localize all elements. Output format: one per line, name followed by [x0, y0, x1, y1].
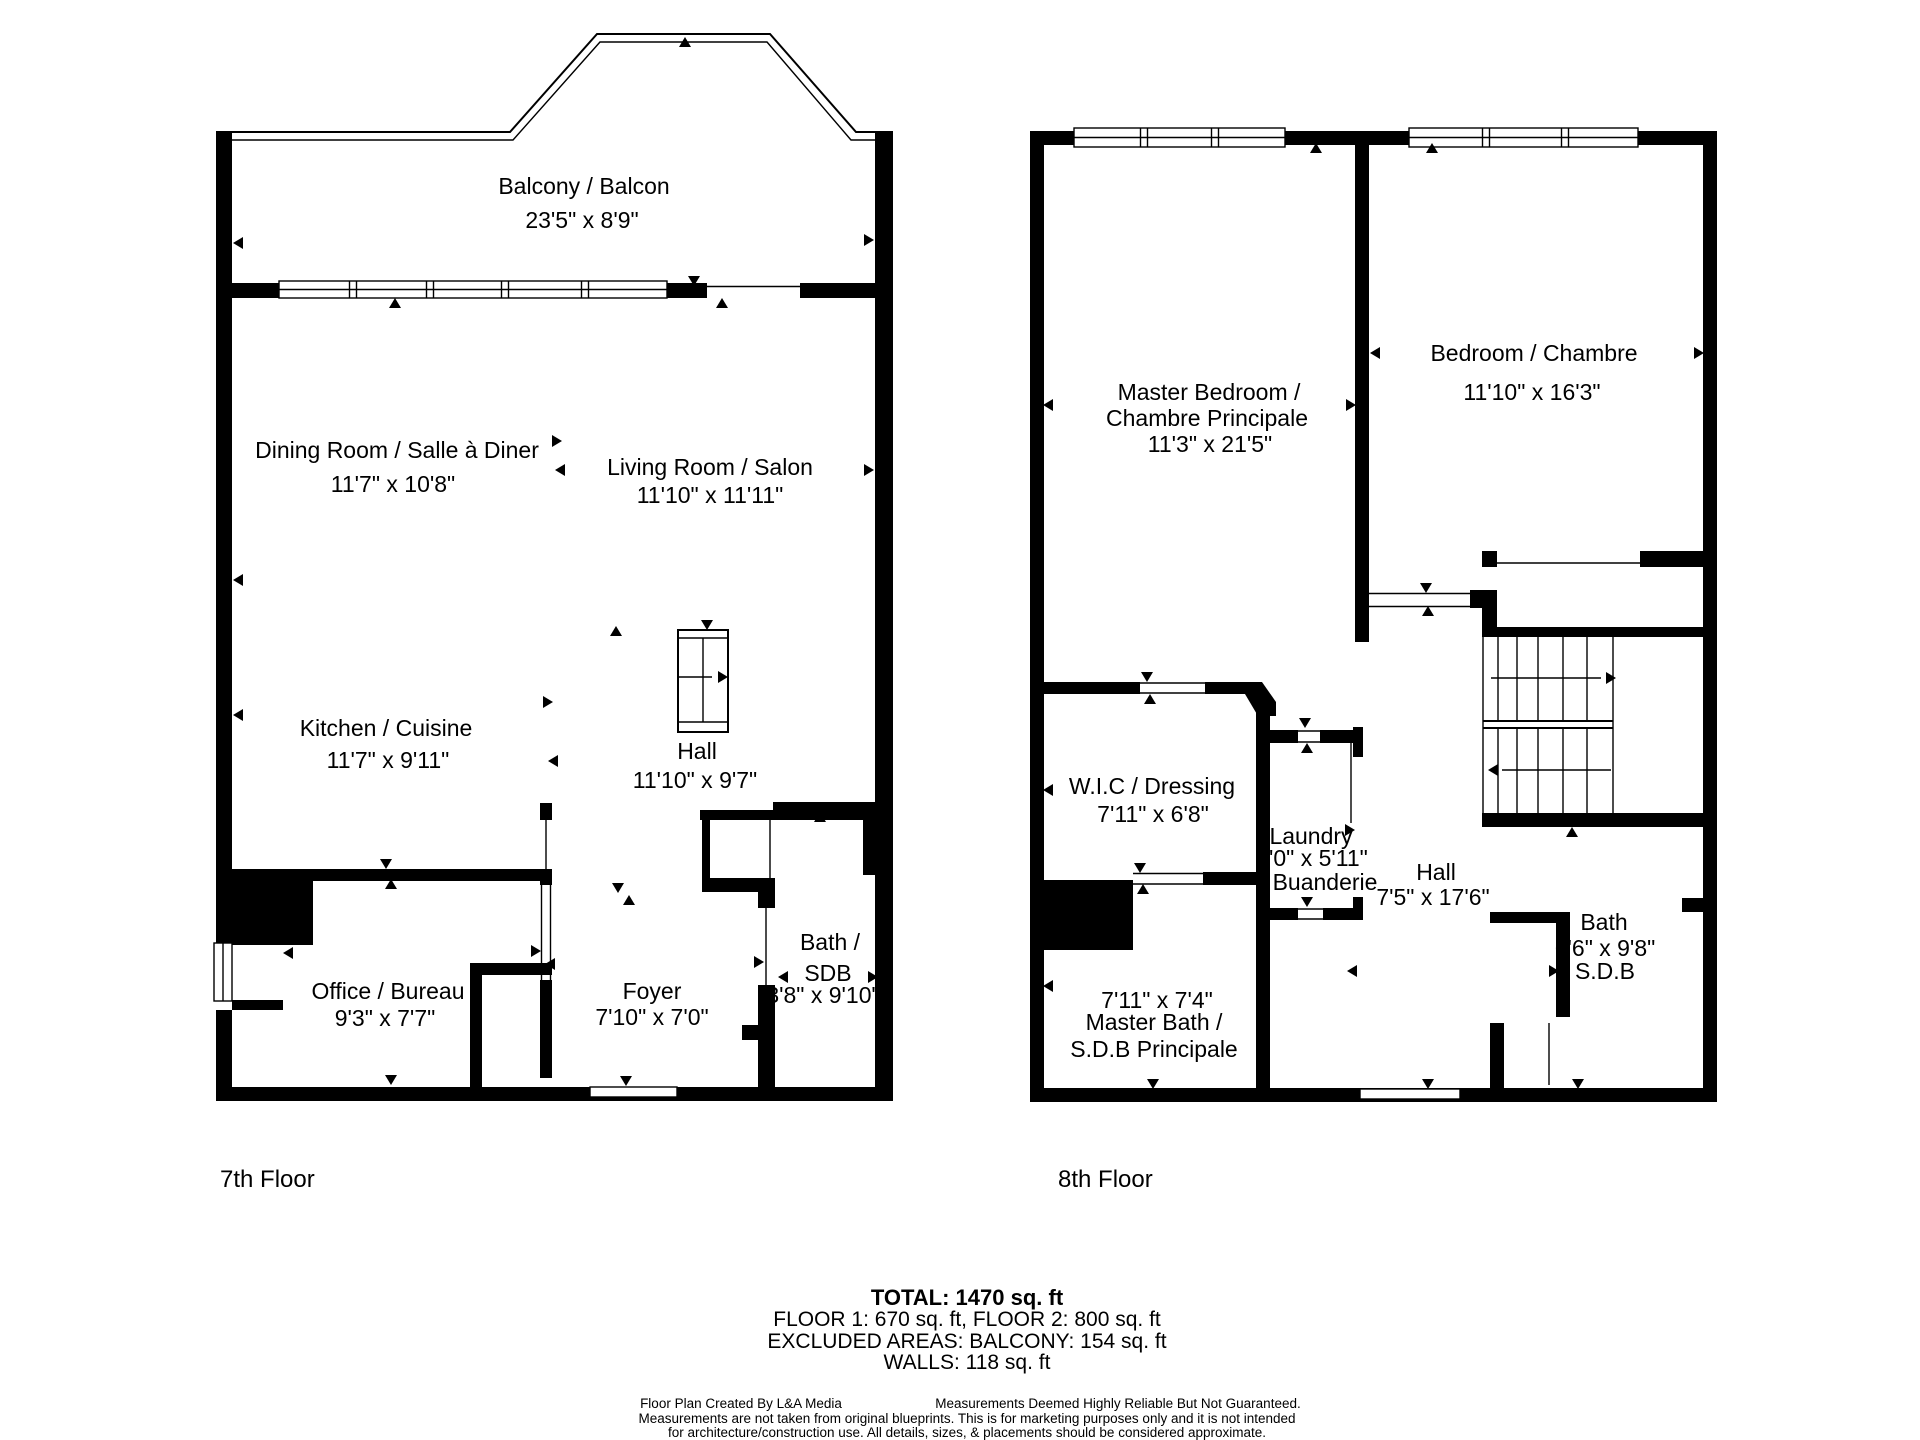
room-dim-foyer: 7'10" x 7'0"	[595, 1004, 708, 1030]
room-label-foyer: Foyer	[623, 978, 682, 1004]
room-label-laundry-fr: Buanderie	[1273, 869, 1378, 895]
room-label-bedroom: Bedroom / Chambre	[1430, 340, 1637, 366]
summary-walls: WALLS: 118 sq. ft	[884, 1351, 1051, 1374]
floor7-plan: Balcony / Balcon 23'5" x 8'9" Dining Roo…	[214, 34, 893, 1101]
room-dim-wic: 7'11" x 6'8"	[1097, 801, 1209, 827]
summary-excluded: EXCLUDED AREAS: BALCONY: 154 sq. ft	[767, 1330, 1166, 1353]
room-label-master-bath-line1: Master Bath /	[1086, 1009, 1223, 1035]
floor7-room-labels: Balcony / Balcon 23'5" x 8'9" Dining Roo…	[255, 173, 880, 1031]
floorplan-drawing: Balcony / Balcon 23'5" x 8'9" Dining Roo…	[0, 0, 1920, 1440]
room-dim-laundry: 3'0" x 5'11"	[1256, 845, 1368, 871]
room-dim-bedroom: 11'10" x 16'3"	[1463, 379, 1600, 405]
floor7-walls	[216, 131, 893, 1101]
room-label-dining: Dining Room / Salle à Diner	[255, 437, 539, 463]
room-label-living: Living Room / Salon	[607, 454, 813, 480]
room-dim-kitchen: 11'7" x 9'11"	[327, 747, 450, 773]
room-label-hall7: Hall	[677, 738, 717, 764]
floor8-plan: Master Bedroom / Chambre Principale 11'3…	[1030, 128, 1717, 1102]
room-label-kitchen: Kitchen / Cuisine	[300, 715, 473, 741]
room-label-bath8-fr: S.D.B	[1575, 958, 1635, 984]
room-dim-living: 11'10" x 11'11"	[637, 482, 784, 508]
floor7-stairs	[678, 620, 728, 732]
floor7-doors	[542, 287, 801, 1098]
summary-total: TOTAL: 1470 sq. ft	[871, 1285, 1064, 1310]
room-label-wic: W.I.C / Dressing	[1069, 773, 1235, 799]
hall-entry-door	[1360, 1089, 1460, 1099]
disclaimer-line3: for architecture/construction use. All d…	[668, 1425, 1266, 1440]
floor7-balcony-outline	[232, 34, 877, 140]
disclaimer-line1: Measurements Deemed Highly Reliable But …	[935, 1396, 1300, 1411]
floor8-label: 8th Floor	[1058, 1166, 1153, 1193]
room-dim-master-bedroom: 11'3" x 21'5"	[1148, 431, 1272, 457]
room-label-bath7-line1: Bath /	[800, 929, 861, 955]
floor7-label: 7th Floor	[220, 1166, 315, 1193]
room-dim-balcony: 23'5" x 8'9"	[525, 207, 638, 233]
room-dim-office: 9'3" x 7'7"	[335, 1005, 436, 1031]
room-dim-hall8: 7'5" x 17'6"	[1376, 884, 1489, 910]
room-label-bath8: Bath	[1580, 909, 1627, 935]
room-label-hall8: Hall	[1416, 859, 1456, 885]
room-label-master-bath-line2: S.D.B Principale	[1070, 1036, 1237, 1062]
summary-block: TOTAL: 1470 sq. ft FLOOR 1: 670 sq. ft, …	[767, 1285, 1166, 1374]
disclaimer-credit: Floor Plan Created By L&A Media	[640, 1396, 842, 1411]
room-label-master-bedroom-line2: Chambre Principale	[1106, 405, 1308, 431]
room-dim-dining: 11'7" x 10'8"	[331, 471, 455, 497]
floor8-stairs	[1483, 637, 1616, 813]
room-dim-bath7: 3'8" x 9'10"	[766, 982, 879, 1008]
floorplan-page: Balcony / Balcon 23'5" x 8'9" Dining Roo…	[0, 0, 1920, 1440]
room-label-balcony: Balcony / Balcon	[498, 173, 669, 199]
room-label-master-bedroom-line1: Master Bedroom /	[1118, 379, 1301, 405]
foyer-entry-door	[590, 1087, 677, 1097]
disclaimer-block: Floor Plan Created By L&A Media Measurem…	[638, 1396, 1300, 1440]
floor-labels: 7th Floor 8th Floor	[220, 1166, 1153, 1193]
room-dim-hall7: 11'10" x 9'7"	[633, 767, 757, 793]
disclaimer-line2: Measurements are not taken from original…	[638, 1411, 1295, 1426]
room-label-office: Office / Bureau	[312, 978, 465, 1004]
summary-floors: FLOOR 1: 670 sq. ft, FLOOR 2: 800 sq. ft	[773, 1308, 1161, 1331]
